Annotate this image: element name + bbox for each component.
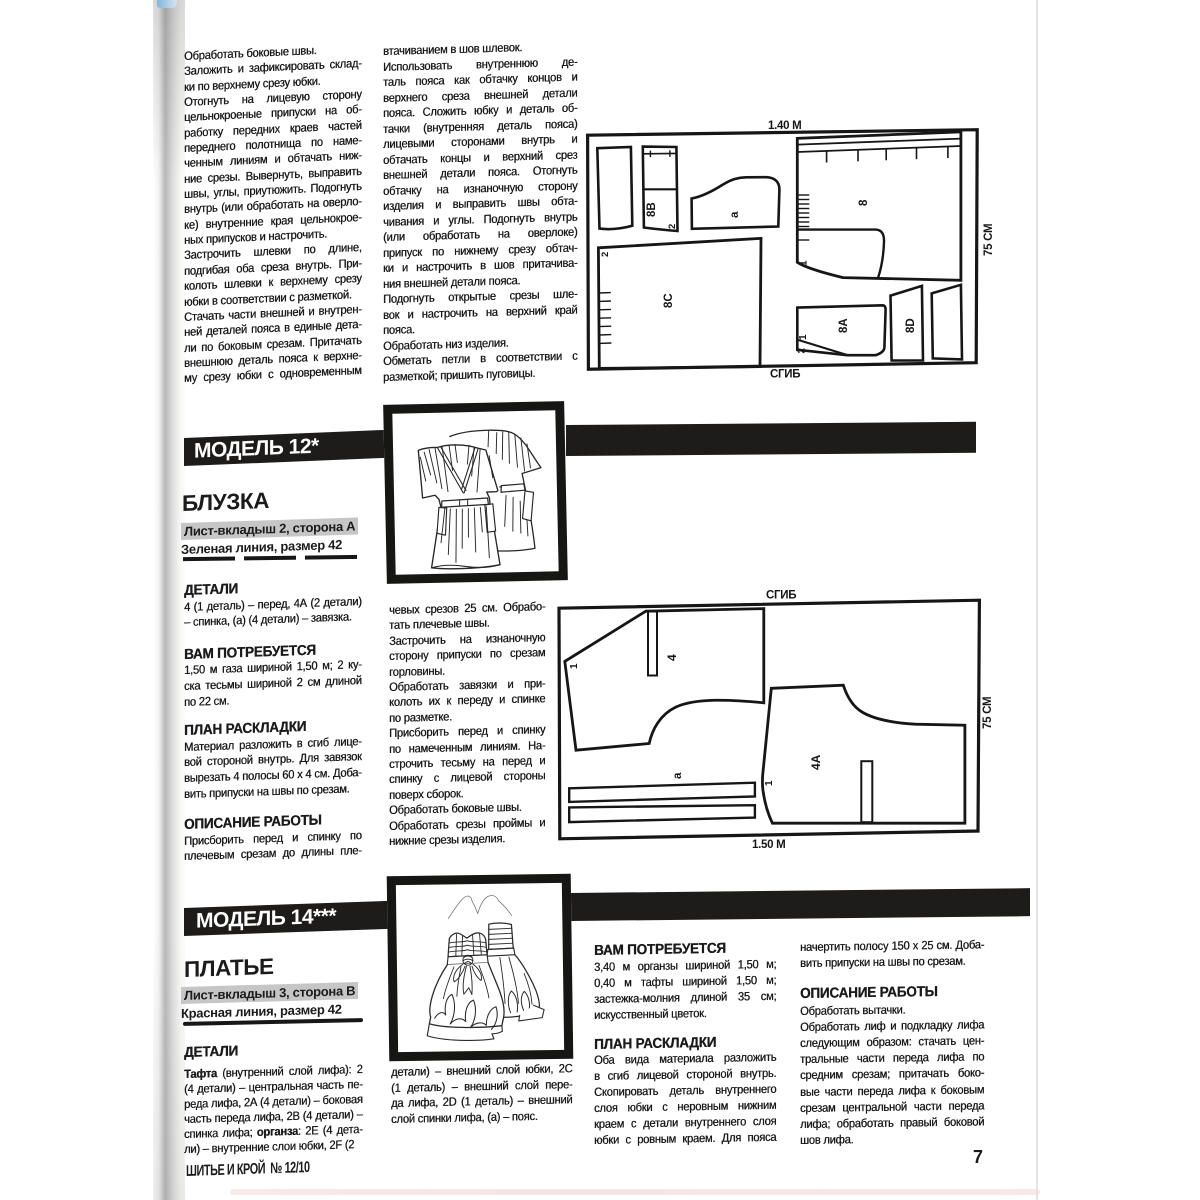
svg-text:1: 1 <box>569 663 580 669</box>
svg-text:75 СМ: 75 СМ <box>983 224 995 256</box>
svg-text:1.40 M: 1.40 M <box>768 120 801 132</box>
svg-text:а: а <box>672 772 684 779</box>
svg-text:4А: 4А <box>809 754 823 770</box>
svg-text:8D: 8D <box>905 318 917 333</box>
svg-text:2: 2 <box>600 252 611 257</box>
svg-text:8A: 8A <box>838 318 850 333</box>
svg-text:75 СМ: 75 СМ <box>982 697 994 729</box>
svg-text:2: 2 <box>797 348 808 354</box>
svg-text:8C: 8C <box>663 293 675 308</box>
svg-text:1: 1 <box>764 780 775 786</box>
svg-text:СГИБ: СГИБ <box>766 590 796 602</box>
svg-text:1: 1 <box>799 260 810 266</box>
svg-text:8: 8 <box>858 199 870 206</box>
svg-text:СГИБ: СГИБ <box>770 369 800 381</box>
svg-text:1: 1 <box>798 334 809 340</box>
svg-text:2: 2 <box>667 224 678 229</box>
svg-text:а: а <box>729 211 741 218</box>
svg-text:4: 4 <box>665 654 679 661</box>
svg-text:8B: 8B <box>646 202 658 217</box>
svg-text:1.50 М: 1.50 М <box>752 839 785 851</box>
